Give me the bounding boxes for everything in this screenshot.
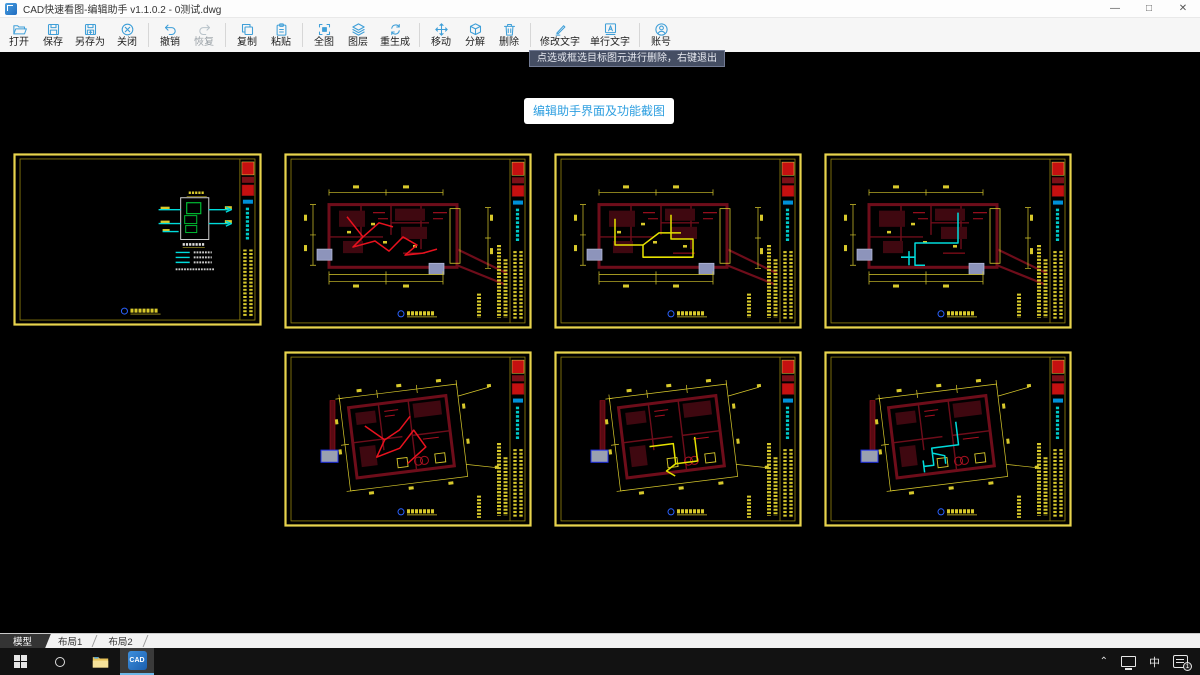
- sheet-tab-bar: 模型 布局1 布局2: [0, 633, 1200, 648]
- start-button[interactable]: [0, 648, 40, 675]
- undo-button[interactable]: 撤销: [153, 18, 187, 52]
- copy-icon: [239, 22, 256, 37]
- move-icon: [433, 22, 450, 37]
- open-folder-icon: [11, 22, 28, 37]
- paste-button[interactable]: 粘贴: [264, 18, 298, 52]
- redo-button[interactable]: 恢复: [187, 18, 221, 52]
- tab-model[interactable]: 模型: [0, 634, 45, 648]
- single-line-text-icon: [602, 22, 619, 37]
- cad-app-taskbar-button[interactable]: CAD: [120, 648, 154, 675]
- layers-button[interactable]: 图层: [341, 18, 375, 52]
- close-window-button[interactable]: ✕: [1166, 0, 1200, 17]
- app-window: CAD快速看图-编辑助手 v1.1.0.2 - 0测试.dwg — □ ✕ 打开…: [0, 0, 1200, 675]
- file-explorer-button[interactable]: [80, 648, 120, 675]
- save-button[interactable]: 保存: [36, 18, 70, 52]
- sheet-drawing: [553, 350, 803, 528]
- maximize-button[interactable]: □: [1132, 0, 1166, 17]
- toolbar: 打开 保存 另存为 关闭 撤销 恢复 复制 粘贴: [0, 18, 1200, 52]
- delete-hint-tooltip: 点选或框选目标图元进行删除，右键退出: [529, 50, 725, 67]
- drawing-thumbnail-7[interactable]: [823, 350, 1073, 528]
- drawing-thumbnail-6[interactable]: [553, 350, 803, 528]
- notification-icon[interactable]: 1: [1173, 655, 1188, 668]
- fit-view-icon: [316, 22, 333, 37]
- folder-icon: [92, 655, 109, 669]
- drawing-canvas[interactable]: 点选或框选目标图元进行删除，右键退出 编辑助手界面及功能截图: [0, 52, 1200, 633]
- redo-icon: [196, 22, 213, 37]
- tray-chevron-icon[interactable]: ⌃: [1100, 656, 1108, 667]
- paste-icon: [273, 22, 290, 37]
- fit-view-button[interactable]: 全图: [307, 18, 341, 52]
- app-logo-icon: [5, 3, 17, 15]
- sheet-drawing: [283, 152, 533, 330]
- account-icon: [653, 22, 670, 37]
- toolbar-separator: [530, 23, 531, 47]
- save-as-icon: [82, 22, 99, 37]
- edit-text-icon: [552, 22, 569, 37]
- layers-icon: [350, 22, 367, 37]
- search-icon: [55, 657, 65, 667]
- drawing-thumbnail-3[interactable]: [553, 152, 803, 330]
- notification-badge: 1: [1183, 662, 1192, 671]
- cad-app-icon: CAD: [128, 651, 147, 670]
- tab-layout1[interactable]: 布局1: [45, 634, 95, 648]
- toolbar-separator: [419, 23, 420, 47]
- save-icon: [45, 22, 62, 37]
- toolbar-separator: [148, 23, 149, 47]
- helper-screenshot-button[interactable]: 编辑助手界面及功能截图: [524, 98, 674, 124]
- sheet-drawing: [283, 350, 533, 528]
- regenerate-button[interactable]: 重生成: [375, 18, 415, 52]
- delete-icon: [501, 22, 518, 37]
- explode-button[interactable]: 分解: [458, 18, 492, 52]
- drawing-thumbnail-5[interactable]: [283, 350, 533, 528]
- single-line-text-button[interactable]: 单行文字: [585, 18, 635, 52]
- sheet-drawing: [12, 152, 263, 327]
- system-tray: ⌃ 中 1: [1100, 654, 1200, 670]
- windows-logo-icon: [14, 655, 27, 668]
- copy-button[interactable]: 复制: [230, 18, 264, 52]
- sheet-drawing: [823, 152, 1073, 330]
- toolbar-separator: [302, 23, 303, 47]
- delete-button[interactable]: 删除: [492, 18, 526, 52]
- titlebar: CAD快速看图-编辑助手 v1.1.0.2 - 0测试.dwg — □ ✕: [0, 0, 1200, 18]
- sheet-drawing: [823, 350, 1073, 528]
- drawing-thumbnail-4[interactable]: [823, 152, 1073, 330]
- undo-icon: [162, 22, 179, 37]
- toolbar-separator: [225, 23, 226, 47]
- regenerate-icon: [387, 22, 404, 37]
- search-button[interactable]: [40, 648, 80, 675]
- close-button[interactable]: 关闭: [110, 18, 144, 52]
- move-button[interactable]: 移动: [424, 18, 458, 52]
- minimize-button[interactable]: —: [1098, 0, 1132, 17]
- sheet-drawing: [553, 152, 803, 330]
- edit-text-button[interactable]: 修改文字: [535, 18, 585, 52]
- drawing-thumbnail-1[interactable]: [12, 152, 263, 327]
- taskbar: CAD ⌃ 中 1: [0, 648, 1200, 675]
- open-button[interactable]: 打开: [2, 18, 36, 52]
- window-title: CAD快速看图-编辑助手 v1.1.0.2 - 0测试.dwg: [23, 1, 221, 16]
- account-button[interactable]: 账号: [644, 18, 678, 52]
- tab-layout2[interactable]: 布局2: [95, 634, 145, 648]
- drawing-thumbnail-2[interactable]: [283, 152, 533, 330]
- network-icon[interactable]: [1121, 656, 1136, 667]
- ime-indicator[interactable]: 中: [1149, 654, 1160, 670]
- explode-icon: [467, 22, 484, 37]
- save-as-button[interactable]: 另存为: [70, 18, 110, 52]
- close-circle-icon: [119, 22, 136, 37]
- toolbar-separator: [639, 23, 640, 47]
